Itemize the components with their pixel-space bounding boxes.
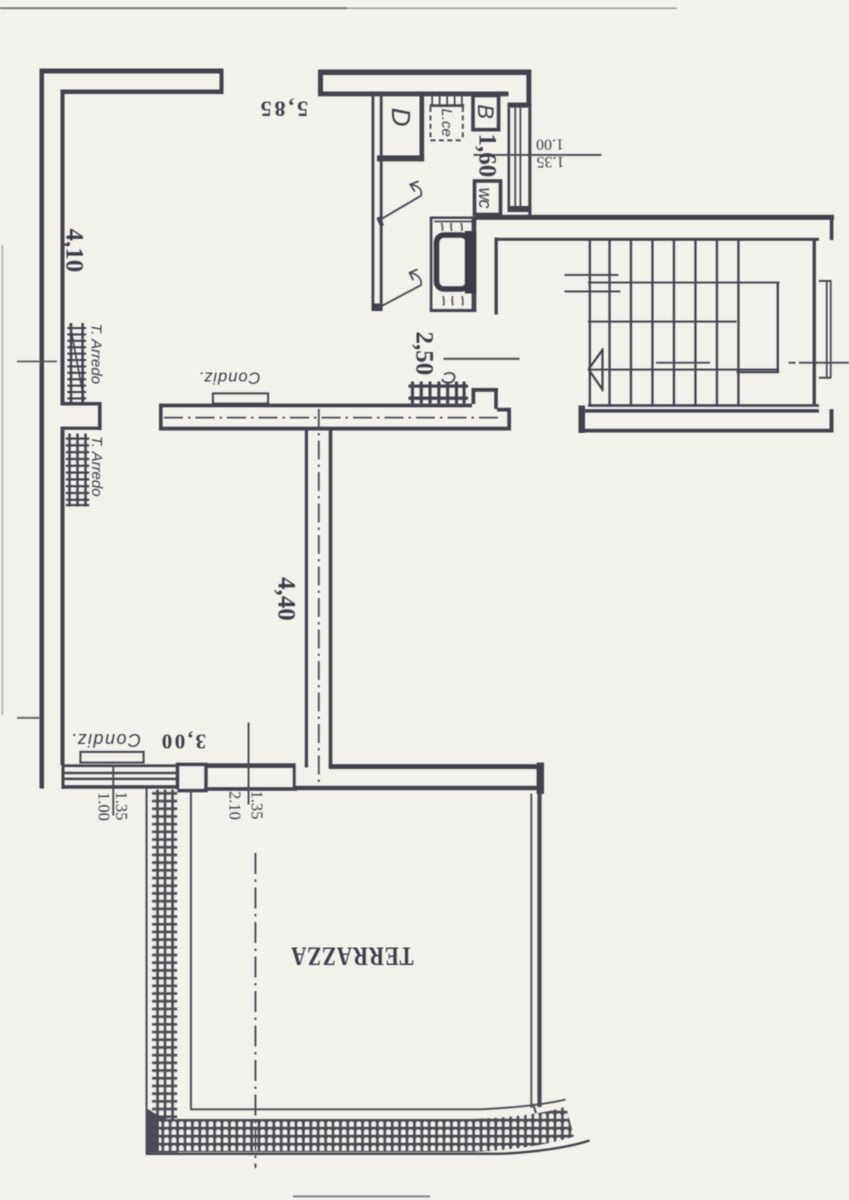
svg-text:1.00: 1.00 <box>536 136 564 153</box>
svg-text:5,85: 5,85 <box>258 97 309 122</box>
svg-text:wc: wc <box>475 188 495 209</box>
svg-text:Condiz.: Condiz. <box>198 368 261 386</box>
svg-text:1,60: 1,60 <box>474 134 501 178</box>
svg-text:T. Arredo: T. Arredo <box>88 324 105 385</box>
svg-text:1.35: 1.35 <box>537 153 565 170</box>
svg-text:2.10: 2.10 <box>226 791 245 820</box>
svg-text:L.ce: L.ce <box>438 109 455 137</box>
svg-text:D: D <box>386 108 416 127</box>
svg-text:T. Arredo: T. Arredo <box>88 436 105 497</box>
svg-text:1.35: 1.35 <box>248 791 267 820</box>
svg-text:2,50: 2,50 <box>411 332 438 376</box>
svg-text:3,00: 3,00 <box>159 730 206 754</box>
svg-text:TERRAZZA: TERRAZZA <box>290 941 413 970</box>
svg-text:Condiz.: Condiz. <box>69 730 141 750</box>
svg-text:4,40: 4,40 <box>273 577 300 621</box>
svg-text:1.00: 1.00 <box>95 792 114 821</box>
svg-text:B: B <box>473 104 498 119</box>
svg-text:4,10: 4,10 <box>61 229 88 273</box>
svg-text:1.35: 1.35 <box>112 792 131 821</box>
